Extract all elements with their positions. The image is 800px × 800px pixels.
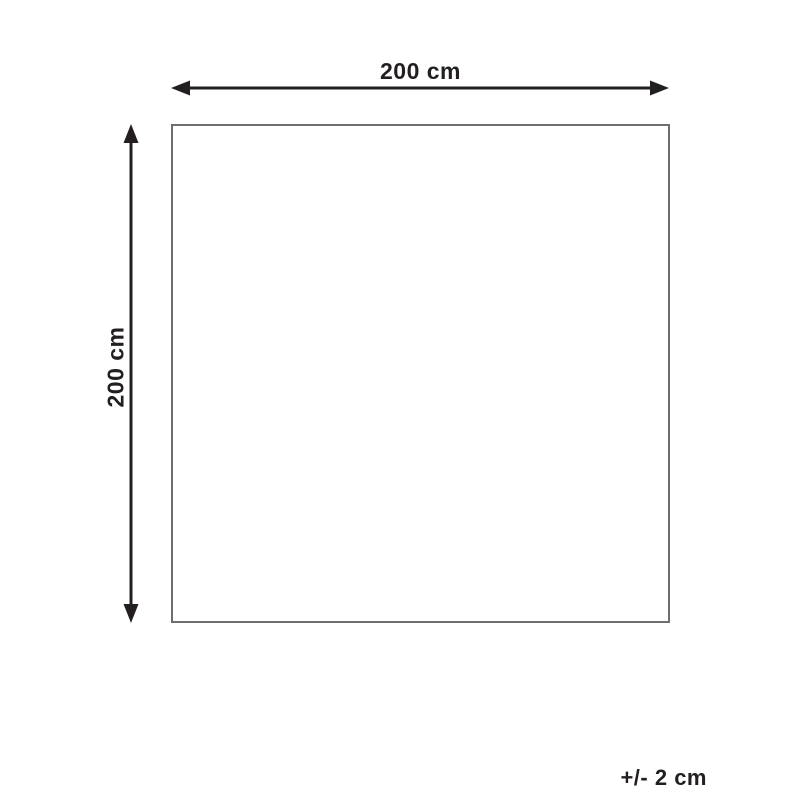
tolerance-label: +/- 2 cm xyxy=(620,765,707,791)
arrow-bottom-head xyxy=(124,604,139,623)
height-dimension-label: 200 cm xyxy=(103,326,130,407)
dimension-diagram: 200 cm 200 cm +/- 2 cm xyxy=(0,0,800,800)
width-dimension-label: 200 cm xyxy=(172,58,669,85)
arrow-top-head xyxy=(124,124,139,143)
product-outline-square xyxy=(172,125,669,622)
